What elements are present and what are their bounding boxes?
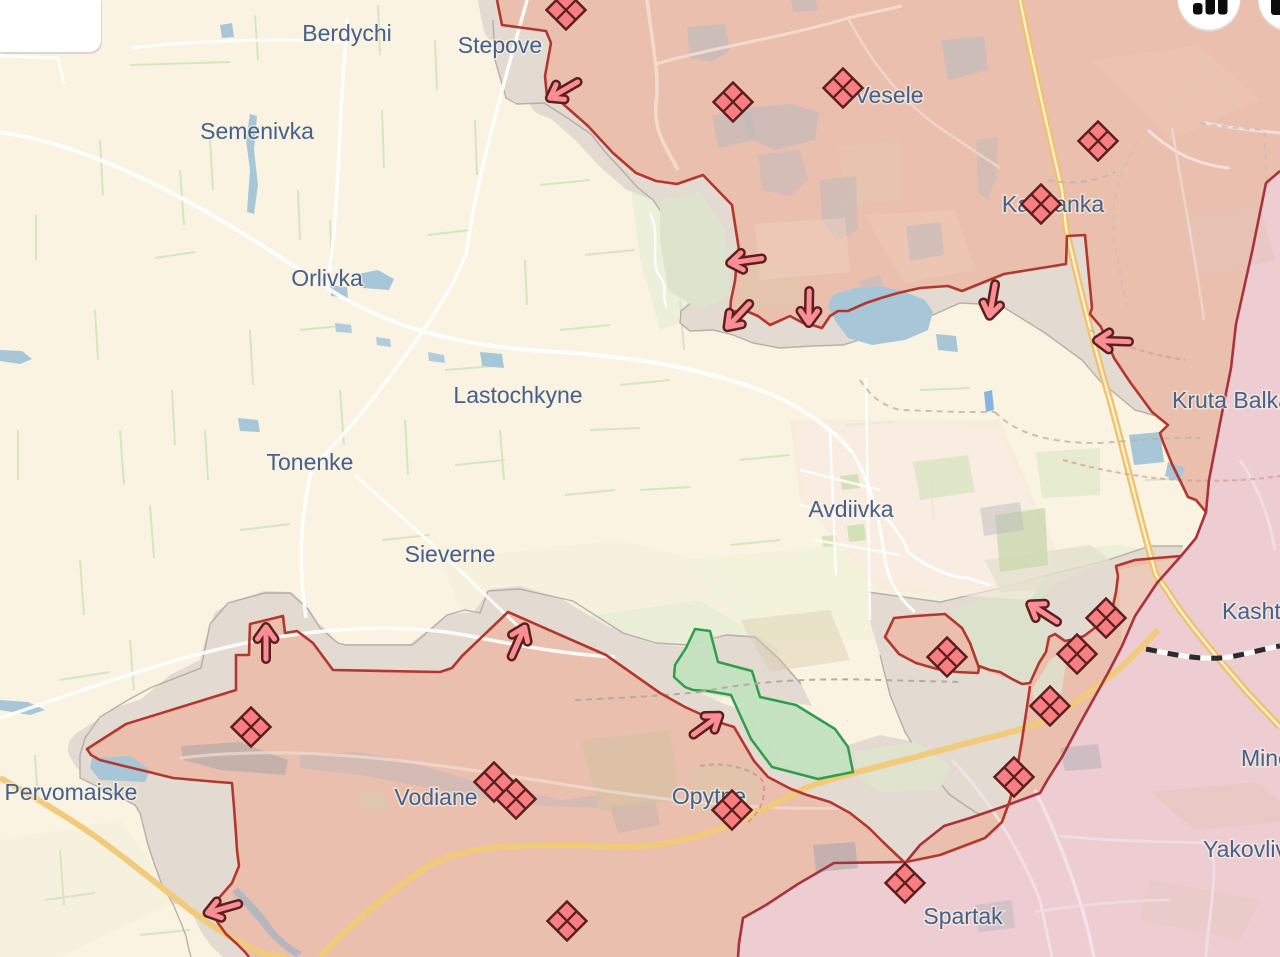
svg-text:Sieverne: Sieverne (405, 541, 496, 567)
svg-text:Minera: Minera (1241, 745, 1280, 771)
svg-text:Kruta Balka: Kruta Balka (1172, 387, 1280, 413)
svg-text:Vesele: Vesele (854, 82, 923, 108)
svg-text:Yakovlivka: Yakovlivka (1203, 836, 1280, 862)
svg-text:Lastochkyne: Lastochkyne (453, 382, 582, 408)
svg-text:Spartak: Spartak (923, 903, 1003, 929)
svg-text:Avdiivka: Avdiivka (808, 496, 893, 522)
svg-text:Semenivka: Semenivka (200, 118, 314, 144)
svg-text:Kashtane: Kashtane (1222, 598, 1280, 624)
svg-text:Pervomaiske: Pervomaiske (5, 779, 138, 805)
svg-text:Orlivka: Orlivka (291, 265, 363, 291)
svg-text:Berdychi: Berdychi (302, 20, 391, 46)
svg-text:Stepove: Stepove (458, 32, 542, 58)
svg-text:Vodiane: Vodiane (394, 784, 477, 810)
svg-text:Tonenke: Tonenke (267, 449, 354, 475)
